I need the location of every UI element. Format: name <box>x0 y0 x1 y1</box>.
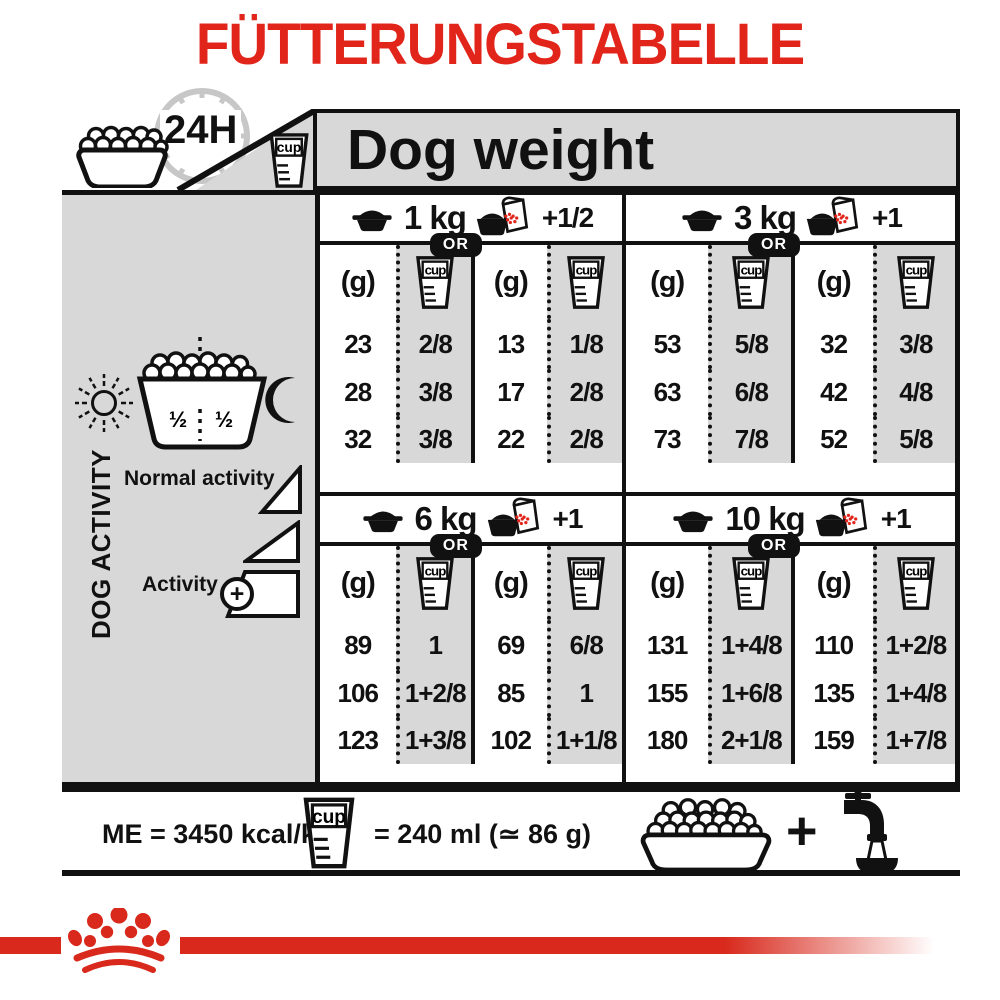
section-3kg-header: 3 kg +1 OR <box>626 195 955 245</box>
page-title: FÜTTERUNGSTABELLE <box>0 10 1000 78</box>
col-header-cup: cup <box>547 546 623 620</box>
cup-icon: cup <box>298 796 360 870</box>
col-header-grams: (g) <box>320 245 396 319</box>
value-cell: 2/8 <box>547 416 623 463</box>
bowl-icon <box>349 204 395 232</box>
value-cell: 1 <box>547 670 623 717</box>
cup-equivalence-label: = 240 ml (≃ 86 g) <box>374 819 591 850</box>
value-cell: 23 <box>320 319 396 369</box>
col-header-grams: (g) <box>471 546 547 620</box>
value-cell: 1+2/8 <box>396 670 472 717</box>
kibble-bowl-icon <box>630 795 782 871</box>
col-header-grams: (g) <box>626 245 708 319</box>
value-cell: 63 <box>626 369 708 416</box>
value-cell: 131 <box>626 620 708 670</box>
duration-24h-label: 24H <box>160 110 241 150</box>
activity-wedge-medium <box>243 520 301 564</box>
value-cell: 159 <box>791 717 873 764</box>
value-cell: 5/8 <box>873 416 955 463</box>
value-cell: 3/8 <box>873 319 955 369</box>
value-cell: 6/8 <box>547 620 623 670</box>
moon-icon <box>261 375 301 425</box>
or-badge: OR <box>748 233 800 257</box>
svg-text:cup: cup <box>425 563 447 578</box>
normal-activity-label: Normal activity <box>124 467 275 491</box>
pouch-bowl-icon <box>486 497 544 541</box>
col-header-grams: (g) <box>471 245 547 319</box>
value-cell: 1+6/8 <box>708 670 790 717</box>
wet-add-label: +1 <box>872 202 902 234</box>
svg-text:cup: cup <box>576 563 598 578</box>
value-cell: 6/8 <box>708 369 790 416</box>
value-cell: 69 <box>471 620 547 670</box>
svg-text:cup: cup <box>425 262 447 277</box>
svg-text:cup: cup <box>906 262 928 277</box>
value-cell: 2/8 <box>547 369 623 416</box>
value-cell: 28 <box>320 369 396 416</box>
section-1kg-body: (g) cup (g) cup <box>320 245 622 492</box>
col-header-cup: cup <box>547 245 623 319</box>
value-cell: 5/8 <box>708 319 790 369</box>
cup-icon: cup <box>414 556 456 611</box>
wet-add-label: +1 <box>881 503 911 535</box>
value-cell: 22 <box>471 416 547 463</box>
svg-text:cup: cup <box>741 563 763 578</box>
value-cell: 4/8 <box>873 369 955 416</box>
cup-icon: cup <box>414 255 456 310</box>
col-header-cup: cup <box>873 546 955 620</box>
value-cell: 2/8 <box>396 319 472 369</box>
section-6kg: 6 kg +1 OR (g) <box>320 492 622 782</box>
or-badge: OR <box>430 534 482 558</box>
dog-activity-axis-label: DOG ACTIVITY <box>86 453 118 639</box>
cup-icon: cup <box>266 132 312 189</box>
dog-weight-header: Dog weight <box>313 109 960 190</box>
value-cell: 1+3/8 <box>396 717 472 764</box>
bowl-icon <box>670 505 716 533</box>
value-cell: 13 <box>471 319 547 369</box>
value-cell: 32 <box>791 319 873 369</box>
value-cell: 32 <box>320 416 396 463</box>
value-cell: 135 <box>791 670 873 717</box>
cup-icon: cup <box>730 556 772 611</box>
svg-text:cup: cup <box>741 262 763 277</box>
value-cell: 1+1/8 <box>547 717 623 764</box>
dog-activity-sidebar: ½ ½ DOG ACTIVITY Normal activity Activit… <box>62 190 315 787</box>
svg-text:cup: cup <box>312 807 346 828</box>
value-cell: 73 <box>626 416 708 463</box>
bowl-icon <box>360 505 406 533</box>
feeding-table: 1 kg +1/2 OR (g) <box>315 190 960 787</box>
svg-text:cup: cup <box>576 262 598 277</box>
value-cell: 1+4/8 <box>708 620 790 670</box>
or-badge: OR <box>430 233 482 257</box>
col-header-cup: cup <box>873 245 955 319</box>
half-half-bowl-icon: ½ ½ <box>132 335 272 457</box>
value-cell: 1 <box>396 620 472 670</box>
value-cell: 123 <box>320 717 396 764</box>
pouch-bowl-icon <box>475 196 533 240</box>
pouch-bowl-icon <box>805 196 863 240</box>
value-cell: 53 <box>626 319 708 369</box>
wet-add-label: +1 <box>553 503 583 535</box>
brand-stripe-right <box>180 937 958 954</box>
svg-text:cup: cup <box>906 563 928 578</box>
section-6kg-header: 6 kg +1 OR <box>320 496 622 546</box>
info-bar: ME = 3450 kcal/kg cup = 240 ml (≃ 86 g) … <box>62 787 960 876</box>
value-cell: 42 <box>791 369 873 416</box>
water-faucet-icon <box>818 788 898 876</box>
value-cell: 1+2/8 <box>873 620 955 670</box>
section-1kg-header: 1 kg +1/2 OR <box>320 195 622 245</box>
col-header-grams: (g) <box>791 546 873 620</box>
or-badge: OR <box>748 534 800 558</box>
svg-text:½: ½ <box>215 407 233 432</box>
section-3kg-body: (g) cup (g) cup <box>626 245 955 492</box>
wet-add-label: +1/2 <box>542 202 593 234</box>
section-10kg-header: 10 kg +1 OR <box>626 496 955 546</box>
svg-text:½: ½ <box>169 407 187 432</box>
brand-stripe-left <box>0 937 61 954</box>
value-cell: 89 <box>320 620 396 670</box>
pouch-bowl-icon <box>814 497 872 541</box>
value-cell: 17 <box>471 369 547 416</box>
value-cell: 106 <box>320 670 396 717</box>
value-cell: 102 <box>471 717 547 764</box>
value-cell: 52 <box>791 416 873 463</box>
kibble-bowl-icon <box>74 110 170 188</box>
col-header-grams: (g) <box>626 546 708 620</box>
col-header-grams: (g) <box>320 546 396 620</box>
activity-wedge-small <box>258 465 302 515</box>
weight-label: 10 kg <box>725 500 804 538</box>
plus-icon: + <box>786 804 818 858</box>
value-cell: 110 <box>791 620 873 670</box>
value-cell: 1/8 <box>547 319 623 369</box>
weight-label: 3 kg <box>734 199 796 237</box>
value-cell: 3/8 <box>396 416 472 463</box>
cup-icon: cup <box>565 556 607 611</box>
svg-text:cup: cup <box>277 140 301 155</box>
value-cell: 3/8 <box>396 369 472 416</box>
weight-label: 6 kg <box>415 500 477 538</box>
value-cell: 2+1/8 <box>708 717 790 764</box>
value-cell: 155 <box>626 670 708 717</box>
section-1kg: 1 kg +1/2 OR (g) <box>320 195 622 492</box>
dog-weight-title: Dog weight <box>317 117 654 183</box>
section-10kg-body: (g) cup (g) cup <box>626 546 955 782</box>
cup-icon: cup <box>895 255 937 310</box>
sun-icon <box>72 371 136 435</box>
cup-icon: cup <box>730 255 772 310</box>
value-cell: 85 <box>471 670 547 717</box>
value-cell: 1+7/8 <box>873 717 955 764</box>
activity-label: Activity <box>142 573 218 597</box>
value-cell: 180 <box>626 717 708 764</box>
section-3kg: 3 kg +1 OR (g) <box>622 195 955 492</box>
feeding-table-page: FÜTTERUNGSTABELLE 24H cup <box>0 0 1000 1000</box>
section-10kg: 10 kg +1 OR (g) <box>622 492 955 782</box>
section-6kg-body: (g) cup (g) cup <box>320 546 622 782</box>
activity-plus-icon: + <box>220 577 254 611</box>
crown-paw-logo <box>64 908 174 976</box>
col-header-grams: (g) <box>791 245 873 319</box>
cup-icon: cup <box>565 255 607 310</box>
bowl-icon <box>679 204 725 232</box>
value-cell: 7/8 <box>708 416 790 463</box>
cup-icon: cup <box>895 556 937 611</box>
weight-label: 1 kg <box>404 199 466 237</box>
value-cell: 1+4/8 <box>873 670 955 717</box>
